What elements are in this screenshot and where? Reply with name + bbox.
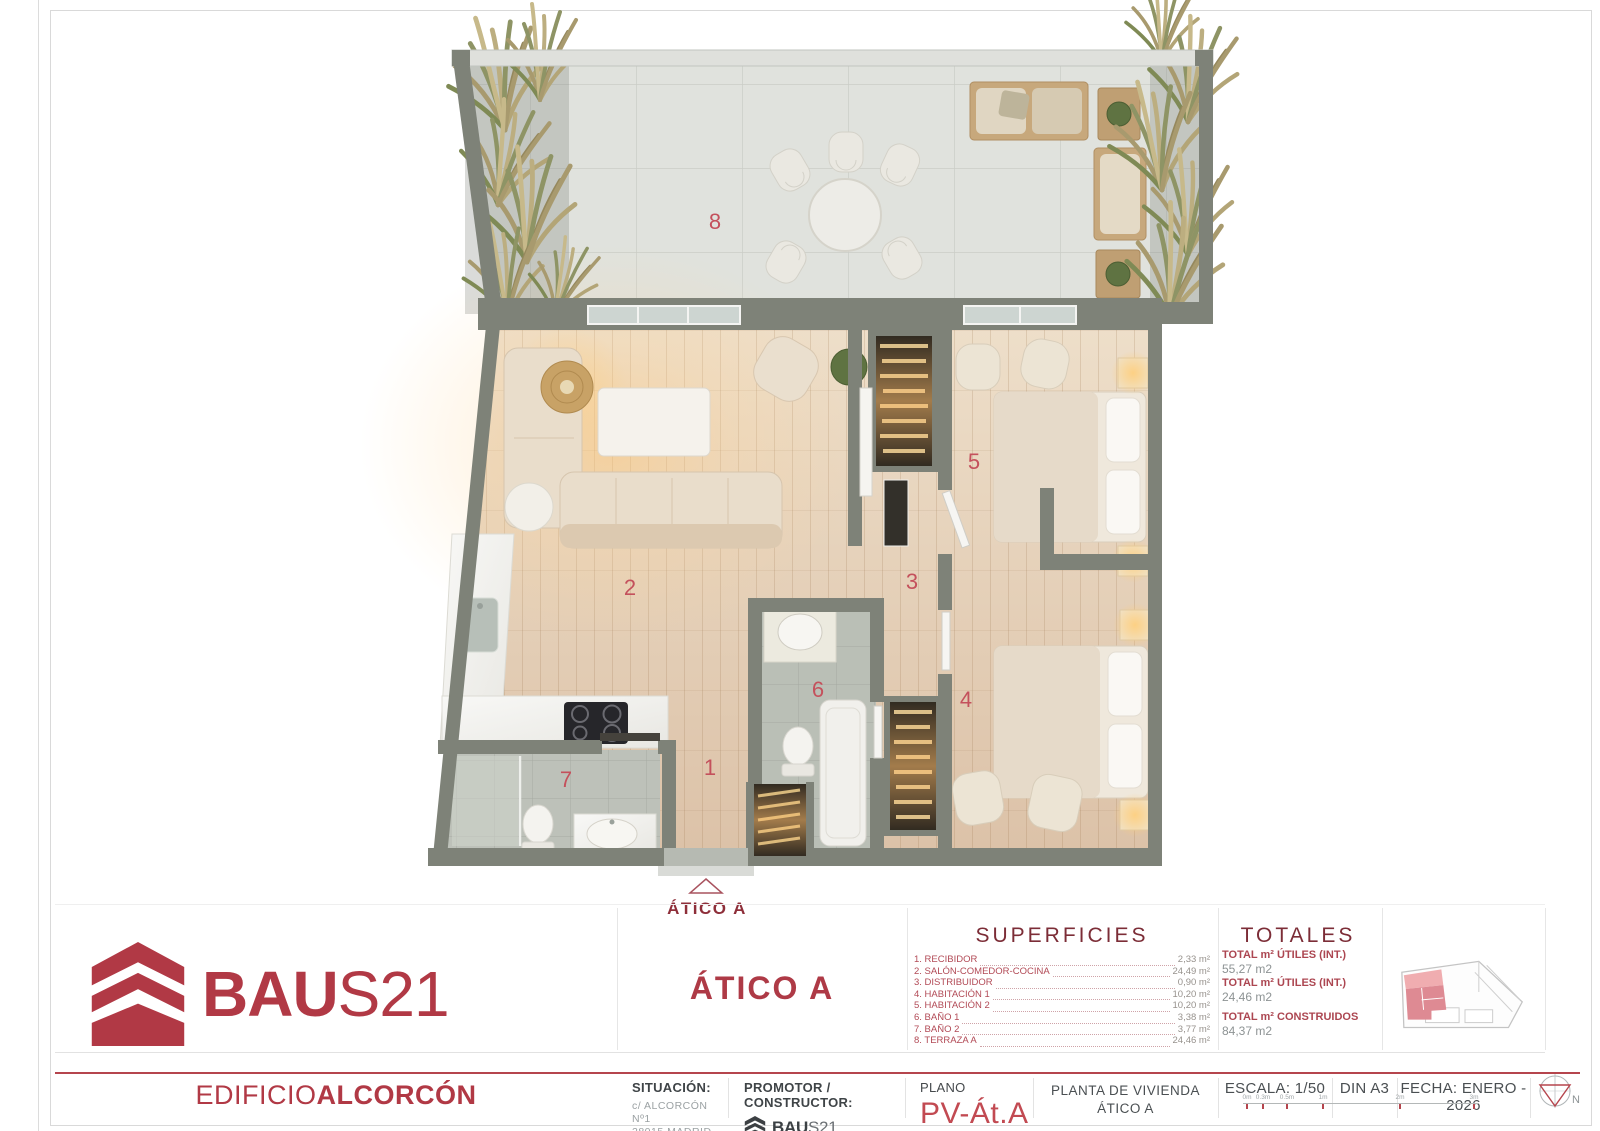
situacion-address1: c/ ALCORCÓN Nº1 bbox=[632, 1100, 724, 1126]
coffee-table bbox=[598, 388, 710, 456]
situacion-label: SITUACIÓN: bbox=[632, 1080, 724, 1095]
promotor-label: PROMOTOR / CONSTRUCTOR: bbox=[744, 1080, 902, 1110]
superficies-heading: SUPERFICIES bbox=[914, 924, 1210, 948]
building-name: EDIFICIOALCORCÓN bbox=[55, 1080, 617, 1111]
room-number-habitacion2: 5 bbox=[968, 449, 980, 474]
superficies-row: 8. TERRAZA A24,46 m² bbox=[914, 1035, 1210, 1047]
footer-red-line bbox=[55, 1072, 1580, 1074]
floor-lamp bbox=[541, 361, 593, 413]
superficies-row: 5. HABITACIÓN 210,20 m² bbox=[914, 1000, 1210, 1012]
promotor-logo: BAUS21 bbox=[744, 1116, 902, 1131]
totales-heading: TOTALES bbox=[1222, 924, 1374, 948]
promotor-house-icon bbox=[744, 1116, 766, 1131]
brand-light: S21 bbox=[338, 958, 449, 1030]
unit-title: ÁTICO A bbox=[617, 970, 907, 1007]
totales-row: TOTAL m² CONSTRUIDOS 84,37 m2 bbox=[1222, 1011, 1374, 1038]
superficies-list: 1. RECIBIDOR2,33 m² 2. SALÓN-COMEDOR-COC… bbox=[914, 954, 1210, 1047]
superficies-row: 7. BAÑO 23,77 m² bbox=[914, 1024, 1210, 1036]
key-plan bbox=[1392, 948, 1540, 1038]
plano-code: PV-Át.A bbox=[920, 1097, 1030, 1131]
plan-sheet: 8 2 3 5 4 6 7 1 ÁTICO A BAUS21 bbox=[0, 0, 1600, 1131]
floor-plan: 8 2 3 5 4 6 7 1 ÁTICO A bbox=[0, 0, 1600, 920]
titleblock-bottom-line bbox=[55, 1052, 1545, 1053]
brand-wordmark: BAUS21 bbox=[202, 962, 449, 1026]
entrance-arrow-icon bbox=[690, 879, 722, 893]
room-number-recibidor: 1 bbox=[704, 755, 716, 780]
plano-cell: PLANO PV-Át.A bbox=[920, 1080, 1030, 1131]
scale-bar: 0m 0.3m 0.5m 1m 2m 3m bbox=[1243, 1094, 1479, 1110]
room-number-terraza: 8 bbox=[709, 209, 721, 234]
superficies-row: 6. BAÑO 13,38 m² bbox=[914, 1012, 1210, 1024]
promotor-cell: PROMOTOR / CONSTRUCTOR: BAUS21 bbox=[744, 1080, 902, 1131]
superficies-row: 3. DISTRIBUIDOR0,90 m² bbox=[914, 977, 1210, 989]
brand-logo: BAUS21 bbox=[88, 942, 508, 1046]
superficies-row: 4. HABITACIÓN 110,20 m² bbox=[914, 989, 1210, 1001]
room-number-distribuidor: 3 bbox=[906, 569, 918, 594]
brand-bold: BAU bbox=[202, 958, 338, 1030]
situacion-address2: 28015 MADRID bbox=[632, 1126, 724, 1131]
entrance-marker: ÁTICO A bbox=[667, 879, 747, 918]
entrance-label: ÁTICO A bbox=[667, 899, 747, 918]
totales-row: TOTAL m² ÚTILES (INT.) 24,46 m2 bbox=[1222, 977, 1374, 1004]
room-number-bano2: 7 bbox=[560, 767, 572, 792]
terrace-bench bbox=[970, 82, 1088, 140]
room-number-habitacion1: 4 bbox=[960, 687, 972, 712]
planta-line1: PLANTA DE VIVIENDA bbox=[1033, 1082, 1218, 1100]
room-number-bano1: 6 bbox=[812, 677, 824, 702]
side-table bbox=[505, 483, 553, 531]
plano-label: PLANO bbox=[920, 1080, 1030, 1095]
situacion-cell: SITUACIÓN: c/ ALCORCÓN Nº1 28015 MADRID bbox=[632, 1080, 724, 1131]
superficies-row: 2. SALÓN-COMEDOR-COCINA24,49 m² bbox=[914, 966, 1210, 978]
brand-house-icon bbox=[88, 942, 188, 1046]
totales-panel: TOTALES TOTAL m² ÚTILES (INT.) 55,27 m2 … bbox=[1222, 924, 1374, 1038]
totales-row: TOTAL m² ÚTILES (INT.) 55,27 m2 bbox=[1222, 949, 1374, 976]
titleblock-top-line bbox=[55, 904, 1545, 905]
planta-line2: ÁTICO A bbox=[1033, 1100, 1218, 1118]
room-number-salon: 2 bbox=[624, 575, 636, 600]
planta-cell: PLANTA DE VIVIENDA ÁTICO A bbox=[1033, 1082, 1218, 1118]
superficies-panel: SUPERFICIES 1. RECIBIDOR2,33 m² 2. SALÓN… bbox=[914, 924, 1210, 1047]
north-label: N bbox=[1572, 1094, 1580, 1106]
superficies-row: 1. RECIBIDOR2,33 m² bbox=[914, 954, 1210, 966]
